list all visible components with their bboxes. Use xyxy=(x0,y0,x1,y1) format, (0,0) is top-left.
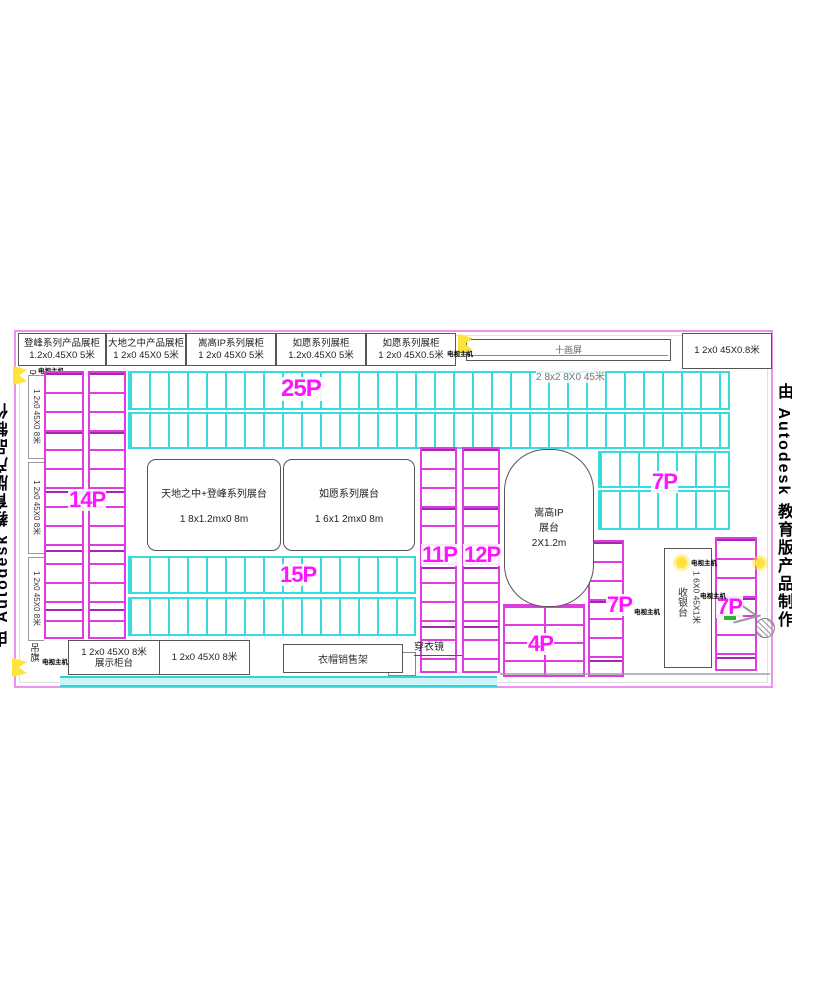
center-grid-dimension: 2 8x2 8X0 45米 xyxy=(536,368,605,383)
picture-screen-box: 十画屏 xyxy=(466,339,671,361)
cabinet-name: 大地之中产品展柜 xyxy=(107,338,185,350)
device-note: 电视主机 xyxy=(42,660,68,667)
mirror-label: 穿衣镜 xyxy=(414,642,462,656)
ip-stage-name: 嵩高IP xyxy=(534,506,563,521)
platform-ruyuan: 如愿系列展台 1 6x1 2mx0 8m xyxy=(283,459,415,551)
display-dim: 1 2x0 45X0 8米 xyxy=(69,647,159,658)
display-counter-box: 1 2x0 45X0 8米 展示柜台 1 2x0 45X0 8米 xyxy=(68,640,250,675)
cabinet-size: 1.2x0.45X0 5米 xyxy=(277,350,365,362)
left-shelf-bracket-1: 1 2x0 45X0 8米 xyxy=(28,375,44,459)
zone-label-15p: 15P xyxy=(279,564,317,586)
cabinet-label-ip-series: 嵩高IP系列展柜 1 2x0 45X0 5米 xyxy=(186,333,276,366)
ip-stage-type: 展台 xyxy=(539,521,559,536)
platform-size: 1 8x1.2mx0 8m xyxy=(180,514,248,525)
green-mark xyxy=(724,616,736,620)
zone-label-7p-upper: 7P xyxy=(651,471,678,493)
shelf-dim-label: 1 2x0 45X0 8米 xyxy=(31,480,42,535)
light-marker-icon xyxy=(676,557,687,568)
platform-name: 如愿系列展台 xyxy=(319,485,379,500)
zone-label-11p: 11P xyxy=(421,544,458,566)
structural-column-icon xyxy=(755,618,775,638)
platform-name: 天地之中+登峰系列展台 xyxy=(161,485,267,500)
cabinet-name: 如愿系列展柜 xyxy=(367,338,455,350)
zone-label-4p: 4P xyxy=(527,633,554,655)
zone-label-25p: 25P xyxy=(280,377,322,401)
shelf-row-25p-1 xyxy=(128,371,730,410)
display-dim: 1 2x0 45X0 8米 xyxy=(172,652,238,663)
zone-label-14p: 14P xyxy=(68,489,106,511)
cabinet-size: 1 2x0 45X0.5米 xyxy=(367,350,455,362)
left-shelf-bracket-2: 1 2x0 45X0 8米 xyxy=(28,462,44,554)
display-counter-cell-2: 1 2x0 45X0 8米 xyxy=(160,641,249,674)
clothes-rack-box: 衣帽销售架 xyxy=(283,644,403,673)
corner-cabinet-label: 1 2x0 45X0.8米 xyxy=(682,333,772,369)
ip-stage-size: 2X1.2m xyxy=(532,536,566,551)
platform-size: 1 6x1 2mx0 8m xyxy=(315,514,383,525)
cabinet-name: 如愿系列展柜 xyxy=(277,338,365,350)
autodesk-watermark-right: 由 Autodesk 教育版产品制作 xyxy=(756,383,792,685)
cabinet-label-ruyuan-2: 如愿系列展柜 1 2x0 45X0.5米 xyxy=(366,333,456,366)
zone-label-12p: 12P xyxy=(463,544,501,566)
ip-stage-oval: 嵩高IP 展台 2X1.2m xyxy=(504,449,594,607)
shelf-row-15p-1 xyxy=(128,556,416,594)
device-note: 电视主机 xyxy=(691,561,717,568)
cashier-name: 收银台 xyxy=(674,587,689,667)
cashier-size: 1 6X0 45X1米 xyxy=(691,571,703,667)
zone-label-7p-mid: 7P xyxy=(606,594,633,616)
cabinet-name: 登峰系列产品展柜 xyxy=(19,338,105,350)
shelf-dim-label: 1 2x0 45X0 8米 xyxy=(31,571,42,626)
shelf-dim-label: 1 2x0 45X0 8米 xyxy=(31,389,42,444)
display-counter-cell-1: 1 2x0 45X0 8米 展示柜台 xyxy=(69,641,160,674)
hanging-banner-label-bottom: 吊旗 xyxy=(26,643,39,671)
device-note: 电视主机 xyxy=(700,594,726,601)
shelf-row-15p-2 xyxy=(128,597,416,636)
left-shelf-bracket-3: 1 2x0 45X0 8米 xyxy=(28,557,44,641)
clothes-rack-label: 衣帽销售架 xyxy=(318,651,368,666)
cabinet-label-dengfeng: 登峰系列产品展柜 1.2x0.45X0 5米 xyxy=(18,333,106,366)
autodesk-watermark-left: 由 Autodesk 教育版产品制作 xyxy=(0,392,24,647)
floor-plan-canvas: 由 Autodesk 教育版产品制作 由 Autodesk 教育版产品制作 登峰… xyxy=(0,0,819,1000)
cabinet-label-dadizhizhong: 大地之中产品展柜 1 2x0 45X0 5米 xyxy=(106,333,186,366)
platform-dengfeng: 天地之中+登峰系列展台 1 8x1.2mx0 8m xyxy=(147,459,281,551)
cabinet-size: 1 2x0 45X0 5米 xyxy=(107,350,185,362)
device-note: 电视主机 xyxy=(447,352,473,359)
cabinet-name: 嵩高IP系列展柜 xyxy=(187,338,275,350)
display-name: 展示柜台 xyxy=(69,658,159,669)
inner-wall-line-bottom xyxy=(500,673,770,675)
cabinet-label-ruyuan-1: 如愿系列展柜 1.2x0.45X0 5米 xyxy=(276,333,366,366)
cabinet-size: 1 2x0 45X0 5米 xyxy=(187,350,275,362)
light-marker-icon xyxy=(755,558,765,568)
cabinet-size: 1 2x0 45X0.8米 xyxy=(683,345,771,357)
shelf-row-25p-2 xyxy=(128,412,730,449)
shelf-row-7p-2 xyxy=(598,490,730,530)
screen-label: 十画屏 xyxy=(467,343,670,356)
device-note: 电视主机 xyxy=(634,610,660,617)
cabinet-size: 1.2x0.45X0 5米 xyxy=(19,350,105,362)
storefront-glass xyxy=(60,676,497,687)
